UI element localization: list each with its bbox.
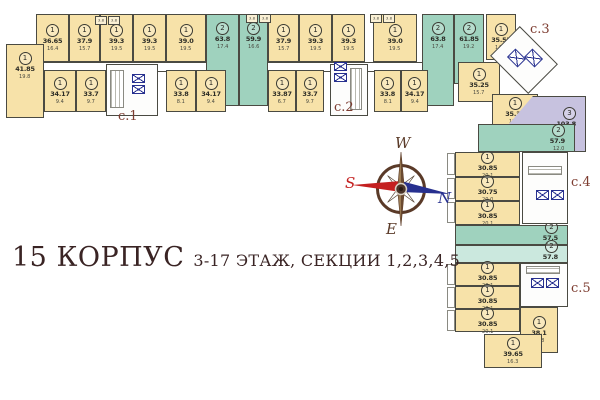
apartment-block: 134.179.4 (44, 70, 76, 112)
apartment-room-size: 9.4 (207, 99, 215, 105)
apartment-block: 133.876.7 (268, 70, 296, 112)
building-number: 15 КОРПУС (12, 242, 184, 273)
apartment-rooms-badge: 1 (342, 24, 355, 37)
apartment-room-size: 6.7 (278, 99, 286, 105)
elevator (334, 62, 347, 71)
elevator (546, 278, 559, 288)
elevator (132, 85, 145, 94)
balcony: 3.8 (108, 16, 120, 25)
apartment-area: 37.9 (276, 37, 291, 45)
apartment-room-size: 19.5 (144, 46, 155, 52)
apartment-rooms-badge: 2 (247, 22, 260, 35)
apartment-rooms-badge: 1 (389, 24, 402, 37)
apartment-room-size: 16.6 (248, 44, 259, 50)
apartment-rooms-badge: 1 (481, 261, 494, 274)
apartment-rooms-badge: 1 (509, 97, 522, 110)
apartment-room-size: 17.4 (432, 44, 443, 50)
apartment-area: 63.8 (215, 35, 230, 43)
apartment-block: 134.179.4 (401, 70, 428, 112)
apartment-room-size: 19.5 (180, 46, 191, 52)
apartment-rooms-badge: 1 (78, 24, 91, 37)
apartment-rooms-badge: 1 (495, 23, 508, 36)
apartment-rooms-badge: 1 (85, 77, 98, 90)
apartment-block: 133.79.7 (76, 70, 106, 112)
apartment-room-size: 19.5 (111, 46, 122, 52)
apartment-area: 33.7 (302, 90, 317, 98)
apartment-block: 257.812.0 (455, 245, 568, 263)
apartment-room-size: 19.5 (389, 46, 400, 52)
plan-title: 15 КОРПУС 3-17 ЭТАЖ, СЕКЦИИ 1,2,3,4,5 (12, 242, 460, 273)
apartment-room-size: 9.7 (306, 99, 314, 105)
apartment-area: 33.8 (380, 90, 395, 98)
apartment-rooms-badge: 2 (463, 22, 476, 35)
apartment-area: 37.9 (77, 37, 92, 45)
apartment-block: 133.88.1 (166, 70, 196, 112)
elevator (334, 73, 347, 82)
apartment-area: 39.3 (109, 37, 124, 45)
apartment-block: 133.88.1 (374, 70, 401, 112)
compass-letter-north: N (438, 189, 451, 207)
apartment-area: 63.8 (430, 35, 445, 43)
apartment-block: 134.179.4 (196, 70, 226, 112)
apartment-block: 130.8520.1 (455, 201, 520, 225)
apartment-area: 39.3 (341, 37, 356, 45)
section-label: c.1 (118, 109, 138, 124)
apartment-area: 39.0 (387, 37, 402, 45)
apartment-area: 30.85 (478, 164, 498, 172)
balcony (447, 287, 455, 308)
floors-and-sections: 3-17 ЭТАЖ, СЕКЦИИ 1,2,3,4,5 (193, 251, 460, 270)
elevator (551, 190, 564, 200)
stairs (110, 70, 124, 108)
apartment-area: 59.9 (246, 35, 261, 43)
apartment-rooms-badge: 1 (481, 284, 494, 297)
apartment-block: 141.8519.8 (6, 44, 44, 118)
apartment-rooms-badge: 1 (304, 77, 317, 90)
section-label: c.4 (571, 175, 591, 190)
apartment-rooms-badge: 1 (481, 307, 494, 320)
compass-hub-center (399, 187, 403, 191)
apartment-rooms-badge: 1 (54, 77, 67, 90)
floor-plan-page: 136.6516.4137.915.7139.319.5139.319.5139… (0, 0, 600, 400)
compass-letter-south: S (345, 174, 355, 192)
apartment-rooms-badge: 1 (507, 337, 520, 350)
apartment-room-size: 9.4 (410, 99, 418, 105)
apartment-room-size: 8.1 (177, 99, 185, 105)
apartment-block: 257.912.0 (478, 124, 575, 152)
apartment-area: 33.87 (272, 90, 292, 98)
apartment-rooms-badge: 1 (46, 24, 59, 37)
apartment-block: 139.319.5 (133, 14, 166, 62)
apartment-room-size: 19.8 (19, 74, 30, 80)
compass-letter-west: W (395, 134, 410, 152)
apartment-area: 33.7 (83, 90, 98, 98)
apartment-rooms-badge: 1 (205, 77, 218, 90)
stairs (528, 166, 562, 175)
apartment-block: 130.7520.0 (455, 177, 520, 201)
balcony: 3.8 (259, 14, 271, 23)
apartment-rooms-badge: 1 (473, 68, 486, 81)
elevator (132, 74, 145, 83)
apartment-area: 36.65 (43, 37, 63, 45)
apartment-area: 57.9 (550, 137, 565, 145)
apartment-block: 139.319.5 (332, 14, 365, 62)
apartment-area: 34.17 (50, 90, 70, 98)
apartment-room-size: 19.2 (463, 44, 474, 50)
stair-elevator-core (522, 152, 568, 224)
apartment-area: 30.75 (478, 188, 498, 196)
apartment-rooms-badge: 2 (432, 22, 445, 35)
apartment-rooms-badge: 1 (481, 199, 494, 212)
apartment-area: 39.3 (308, 37, 323, 45)
balcony (447, 310, 455, 331)
apartment-block: 130.8520.1 (455, 286, 520, 309)
apartment-block: 133.79.7 (296, 70, 324, 112)
apartment-block: 137.915.7 (268, 14, 299, 62)
apartment-block: 139.6516.3 (484, 334, 542, 368)
apartment-block: 139.319.5 (299, 14, 332, 62)
apartment-block: 259.916.6 (239, 14, 268, 106)
apartment-rooms-badge: 1 (277, 24, 290, 37)
apartment-block: 130.8520.1 (455, 152, 520, 177)
apartment-block: 130.8520.1 (455, 309, 520, 332)
balcony: 3.8 (370, 14, 382, 23)
apartment-room-size: 19.5 (343, 46, 354, 52)
apartment-area: 33.8 (173, 90, 188, 98)
apartment-room-size: 9.4 (56, 99, 64, 105)
section-label: c.3 (530, 22, 550, 37)
apartment-rooms-badge: 2 (545, 240, 558, 253)
apartment-room-size: 15.7 (278, 46, 289, 52)
apartment-area: 61.85 (459, 35, 479, 43)
apartment-room-size: 15.7 (473, 90, 484, 96)
elevator (531, 278, 544, 288)
section-label: c.5 (571, 281, 591, 296)
apartment-room-size: 16.3 (507, 359, 518, 365)
apartment-rooms-badge: 3 (563, 107, 576, 120)
stairs (526, 266, 560, 274)
apartment-area: 35.25 (469, 81, 489, 89)
apartment-room-size: 12.0 (553, 146, 564, 152)
apartment-rooms-badge: 1 (175, 77, 188, 90)
apartment-area: 34.17 (405, 90, 425, 98)
apartment-block: 139.019.5 (166, 14, 206, 62)
apartment-area: 39.0 (178, 37, 193, 45)
apartment-rooms-badge: 1 (309, 24, 322, 37)
apartment-rooms-badge: 2 (216, 22, 229, 35)
apartment-rooms-badge: 1 (533, 316, 546, 329)
apartment-room-size: 9.7 (87, 99, 95, 105)
section-label: c.2 (334, 100, 354, 115)
apartment-area: 30.85 (478, 212, 498, 220)
apartment-area: 30.85 (478, 297, 498, 305)
apartment-area: 30.85 (478, 320, 498, 328)
apartment-area: 34.17 (201, 90, 221, 98)
apartment-block: 130.8520.1 (455, 263, 520, 286)
apartment-rooms-badge: 2 (552, 124, 565, 137)
apartment-rooms-badge: 1 (481, 175, 494, 188)
compass-letter-east: E (386, 220, 397, 238)
apartment-rooms-badge: 1 (481, 151, 494, 164)
apartment-area: 39.65 (503, 350, 523, 358)
apartment-rooms-badge: 1 (276, 77, 289, 90)
apartment-room-size: 16.4 (47, 46, 58, 52)
apartment-area: 57.8 (543, 253, 558, 261)
apartment-area: 41.85 (15, 65, 35, 73)
apartment-room-size: 19.5 (310, 46, 321, 52)
apartment-rooms-badge: 1 (408, 77, 421, 90)
apartment-rooms-badge: 1 (381, 77, 394, 90)
apartment-rooms-badge: 1 (19, 52, 32, 65)
apartment-room-size: 15.7 (79, 46, 90, 52)
elevator (536, 190, 549, 200)
balcony: 3.8 (383, 14, 395, 23)
apartment-area: 39.3 (142, 37, 157, 45)
apartment-room-size: 17.4 (217, 44, 228, 50)
apartment-rooms-badge: 1 (143, 24, 156, 37)
apartment-area: 30.85 (478, 274, 498, 282)
apartment-room-size: 8.1 (383, 99, 391, 105)
apartment-rooms-badge: 1 (180, 24, 193, 37)
balcony: 3.8 (246, 14, 258, 23)
balcony: 3.8 (95, 16, 107, 25)
apartment-rooms-badge: 1 (110, 24, 123, 37)
